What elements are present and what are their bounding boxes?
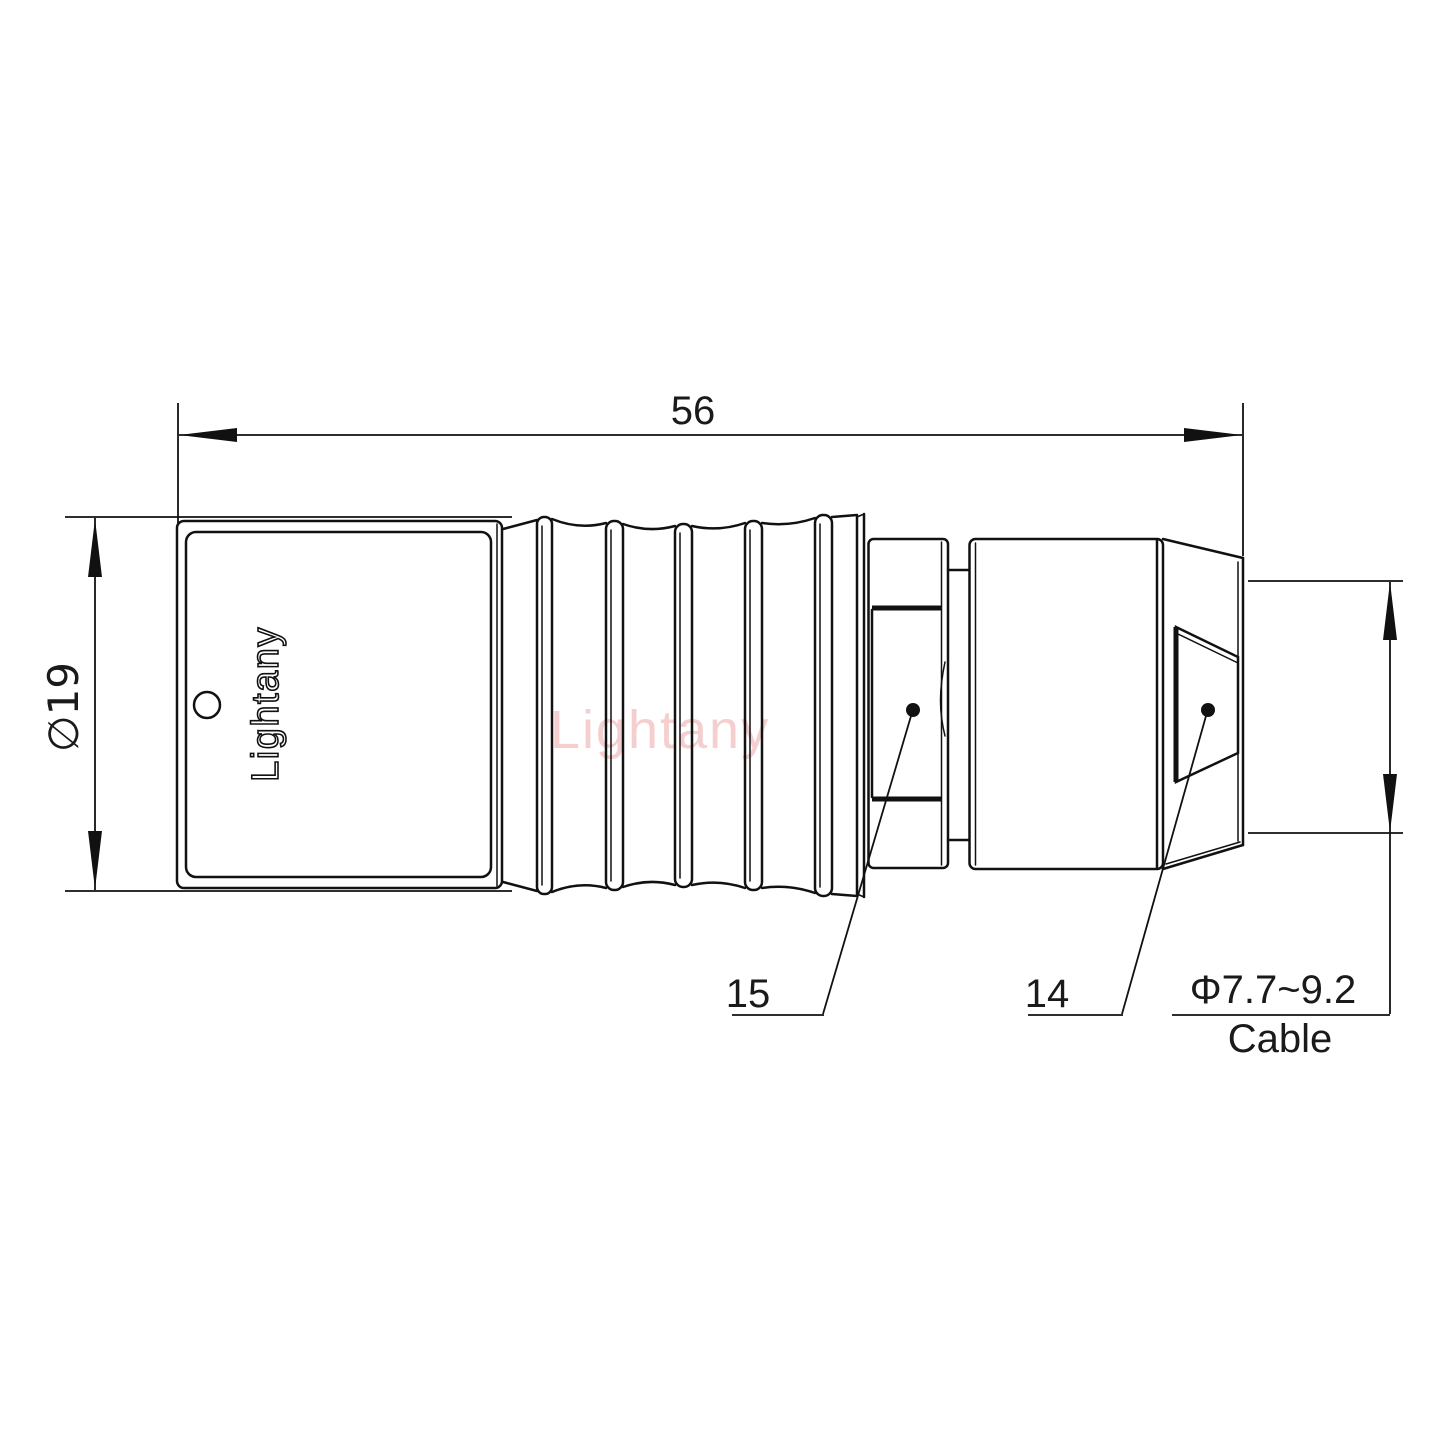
brand-engraving-label: Lightany xyxy=(245,626,287,782)
connector-technical-drawing: Lightany 56 ∅19 Lightany xyxy=(0,0,1440,1440)
technical-drawing-page: Lightany 56 ∅19 Lightany xyxy=(0,0,1440,1440)
part-15-marker-dot xyxy=(906,703,920,717)
part-15-label: 15 xyxy=(726,972,771,1016)
dimension-diameter-label: ∅19 xyxy=(39,662,88,752)
part-14-marker-dot xyxy=(1201,703,1215,717)
dimension-length-label: 56 xyxy=(671,389,716,433)
cable-range-label: Φ7.7~9.2 xyxy=(1190,968,1356,1012)
cable-word-label: Cable xyxy=(1228,1017,1333,1061)
part-14-label: 14 xyxy=(1025,972,1070,1016)
watermark-text: Lightany xyxy=(550,700,770,760)
